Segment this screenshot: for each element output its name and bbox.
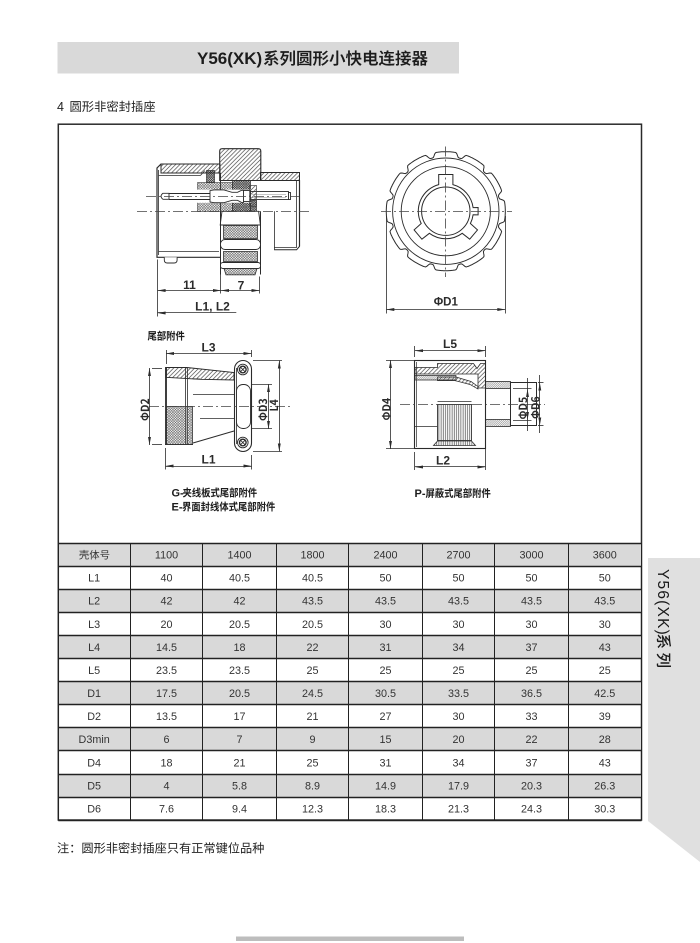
svg-text:43.5: 43.5 xyxy=(521,596,542,608)
svg-text:Y56(XK): Y56(XK) xyxy=(654,569,671,636)
svg-text:37: 37 xyxy=(525,642,537,654)
svg-text:34: 34 xyxy=(452,757,464,769)
svg-text:43.5: 43.5 xyxy=(375,596,396,608)
svg-text:2400: 2400 xyxy=(373,550,397,562)
svg-text:43.5: 43.5 xyxy=(302,596,323,608)
svg-text:17.9: 17.9 xyxy=(448,780,469,792)
svg-text:5.8: 5.8 xyxy=(232,780,247,792)
svg-text:1100: 1100 xyxy=(155,550,178,562)
svg-text:7: 7 xyxy=(238,279,245,293)
svg-text:13.5: 13.5 xyxy=(156,711,177,723)
svg-text:20.5: 20.5 xyxy=(229,619,250,631)
svg-text:34: 34 xyxy=(452,642,464,654)
svg-text:ΦD1: ΦD1 xyxy=(434,297,459,309)
svg-text:D3min: D3min xyxy=(79,734,110,746)
svg-text:33.5: 33.5 xyxy=(448,688,469,700)
svg-text:25: 25 xyxy=(379,665,391,677)
svg-text:43: 43 xyxy=(599,757,611,769)
svg-text:18: 18 xyxy=(160,757,172,769)
svg-text:40: 40 xyxy=(160,573,172,585)
svg-text:4: 4 xyxy=(163,780,169,792)
svg-text:G-: G- xyxy=(172,488,185,500)
svg-text:14.5: 14.5 xyxy=(156,642,177,654)
svg-text:33: 33 xyxy=(525,711,537,723)
svg-text:21: 21 xyxy=(306,711,318,723)
svg-text:23.5: 23.5 xyxy=(229,665,250,677)
svg-text:26.3: 26.3 xyxy=(594,780,615,792)
svg-text:31: 31 xyxy=(379,642,391,654)
svg-text:1400: 1400 xyxy=(227,550,251,562)
svg-text:50: 50 xyxy=(379,573,391,585)
svg-text:36.5: 36.5 xyxy=(521,688,542,700)
svg-text:3000: 3000 xyxy=(519,550,543,562)
svg-text:43.5: 43.5 xyxy=(594,596,615,608)
svg-text:20.5: 20.5 xyxy=(229,688,250,700)
svg-text:L5: L5 xyxy=(88,665,100,677)
svg-text:25: 25 xyxy=(306,757,318,769)
svg-text:39: 39 xyxy=(599,711,611,723)
svg-text:D2: D2 xyxy=(87,711,101,723)
svg-text:27: 27 xyxy=(379,711,391,723)
svg-text:37: 37 xyxy=(525,757,537,769)
svg-text:43.5: 43.5 xyxy=(448,596,469,608)
svg-text:L3: L3 xyxy=(201,341,215,355)
svg-text:21: 21 xyxy=(233,757,245,769)
svg-text:8.9: 8.9 xyxy=(305,780,320,792)
svg-text:30: 30 xyxy=(379,619,391,631)
svg-text:14.9: 14.9 xyxy=(375,780,396,792)
svg-text:1800: 1800 xyxy=(300,550,324,562)
svg-text:L2: L2 xyxy=(88,596,100,608)
svg-text:50: 50 xyxy=(599,573,611,585)
svg-text:31: 31 xyxy=(379,757,391,769)
svg-text:43: 43 xyxy=(599,642,611,654)
svg-text:18: 18 xyxy=(233,642,245,654)
svg-text:11: 11 xyxy=(183,278,196,292)
svg-text:3600: 3600 xyxy=(593,550,617,562)
svg-text:2700: 2700 xyxy=(446,550,470,562)
svg-text:20: 20 xyxy=(160,619,172,631)
svg-text:42.5: 42.5 xyxy=(594,688,615,700)
svg-text:Y56(XK): Y56(XK) xyxy=(197,49,262,68)
svg-text:L1: L1 xyxy=(201,453,215,467)
svg-text:D4: D4 xyxy=(87,757,101,769)
svg-text:30: 30 xyxy=(452,711,464,723)
svg-text:50: 50 xyxy=(525,573,537,585)
svg-text:15: 15 xyxy=(379,734,391,746)
svg-text:20: 20 xyxy=(452,734,464,746)
svg-text:30: 30 xyxy=(525,619,537,631)
svg-text:28: 28 xyxy=(599,734,611,746)
svg-text:L2: L2 xyxy=(436,454,450,468)
svg-text:9.4: 9.4 xyxy=(232,803,247,815)
svg-text:42: 42 xyxy=(160,596,172,608)
svg-text:7: 7 xyxy=(236,734,242,746)
svg-text:L5: L5 xyxy=(443,337,457,351)
svg-text:40.5: 40.5 xyxy=(229,573,250,585)
svg-text:25: 25 xyxy=(306,665,318,677)
svg-text:30: 30 xyxy=(599,619,611,631)
svg-text:P-: P- xyxy=(415,488,426,500)
svg-text:22: 22 xyxy=(525,734,537,746)
svg-text:40.5: 40.5 xyxy=(302,573,323,585)
svg-text:20.5: 20.5 xyxy=(302,619,323,631)
svg-text:L1: L1 xyxy=(88,573,100,585)
svg-text:25: 25 xyxy=(452,665,464,677)
svg-text:30.5: 30.5 xyxy=(375,688,396,700)
svg-text:L1, L2: L1, L2 xyxy=(195,300,230,314)
svg-text:17.5: 17.5 xyxy=(156,688,177,700)
svg-text:20.3: 20.3 xyxy=(521,780,542,792)
svg-text:24.5: 24.5 xyxy=(302,688,323,700)
svg-text:21.3: 21.3 xyxy=(448,803,469,815)
svg-text:50: 50 xyxy=(452,573,464,585)
svg-text:18.3: 18.3 xyxy=(375,803,396,815)
svg-text:7.6: 7.6 xyxy=(159,803,174,815)
svg-text:L3: L3 xyxy=(88,619,100,631)
svg-text:24.3: 24.3 xyxy=(521,803,542,815)
svg-text:6: 6 xyxy=(163,734,169,746)
svg-text:9: 9 xyxy=(309,734,315,746)
svg-text:22: 22 xyxy=(306,642,318,654)
svg-text:17: 17 xyxy=(233,711,245,723)
svg-text:E-: E- xyxy=(172,502,183,514)
svg-text:30.3: 30.3 xyxy=(594,803,615,815)
svg-text:42: 42 xyxy=(233,596,245,608)
svg-text:4: 4 xyxy=(57,100,64,114)
svg-text:23.5: 23.5 xyxy=(156,665,177,677)
svg-text:L4: L4 xyxy=(88,642,100,654)
svg-text:D6: D6 xyxy=(87,803,101,815)
svg-text:25: 25 xyxy=(599,665,611,677)
svg-text:25: 25 xyxy=(525,665,537,677)
svg-text:D5: D5 xyxy=(87,780,101,792)
svg-text:12.3: 12.3 xyxy=(302,803,323,815)
svg-text:30: 30 xyxy=(452,619,464,631)
svg-text:D1: D1 xyxy=(87,688,101,700)
